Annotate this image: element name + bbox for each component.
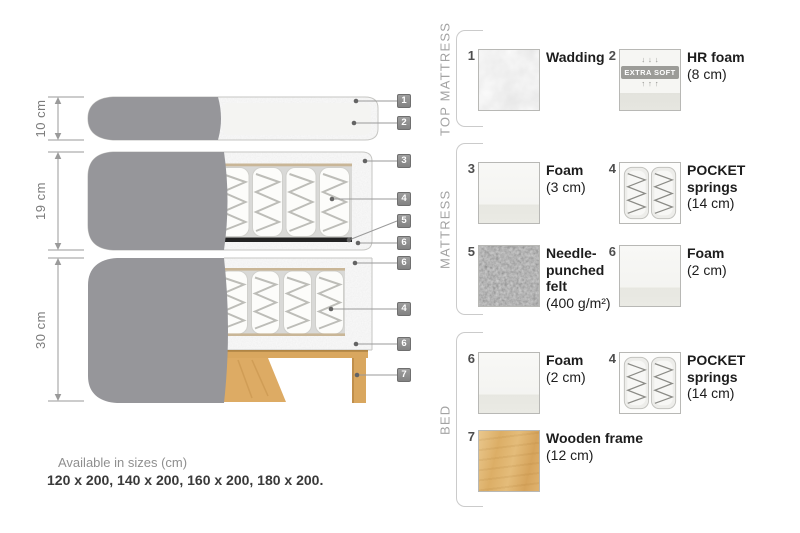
foam-swatch bbox=[619, 245, 681, 307]
callout-badge-4: 4 bbox=[397, 192, 411, 206]
foam-swatch bbox=[478, 162, 540, 224]
item-size: (14 cm) bbox=[687, 195, 745, 212]
dimension-label-30cm: 30 cm bbox=[33, 311, 48, 349]
felt-swatch bbox=[478, 245, 540, 307]
wood-swatch bbox=[478, 430, 540, 492]
extra-soft-badge: EXTRA SOFT bbox=[621, 66, 678, 79]
item-size: (2 cm) bbox=[546, 369, 586, 386]
legend-item-wadding: 1 Wadding bbox=[460, 49, 605, 111]
item-label: POCKET bbox=[687, 162, 745, 179]
top-mattress-section bbox=[80, 90, 386, 148]
item-number: 7 bbox=[460, 430, 475, 444]
item-label: springs bbox=[687, 369, 745, 386]
item-number: 4 bbox=[601, 162, 616, 176]
item-label: springs bbox=[687, 179, 745, 196]
pocket-springs-swatch bbox=[619, 352, 681, 414]
item-number: 3 bbox=[460, 162, 475, 176]
item-number: 4 bbox=[601, 352, 616, 366]
wadding-swatch bbox=[478, 49, 540, 111]
callout-badge-2: 2 bbox=[397, 116, 411, 130]
group-label-bed: BED bbox=[435, 332, 455, 507]
item-size: (3 cm) bbox=[546, 179, 586, 196]
legend-item-foam-2cm: 6 Foam (2 cm) bbox=[601, 245, 727, 307]
item-number: 1 bbox=[460, 49, 475, 63]
legend-item-foam-2cm-bed: 6 Foam (2 cm) bbox=[460, 352, 586, 414]
legend-item-hr-foam: 2 ↓↓↓ EXTRA SOFT ↑↑↑ HR foam (8 cm) bbox=[601, 49, 745, 111]
item-number: 6 bbox=[601, 245, 616, 259]
item-size: (14 cm) bbox=[687, 385, 745, 402]
materials-legend: TOP MATTRESS 1 Wadding 2 ↓↓↓ EXTRA SOFT … bbox=[435, 0, 800, 533]
dimension-19cm bbox=[48, 152, 84, 250]
item-size: (8 cm) bbox=[687, 66, 745, 83]
item-label: Foam bbox=[546, 352, 586, 369]
foam-swatch bbox=[478, 352, 540, 414]
item-number: 5 bbox=[460, 245, 475, 259]
item-size: (12 cm) bbox=[546, 447, 643, 464]
item-label: POCKET bbox=[687, 352, 745, 369]
legend-item-pocket-springs: 4 POCKET springs (14 cm) bbox=[601, 162, 745, 224]
group-label-top-mattress: TOP MATTRESS bbox=[435, 30, 455, 127]
callout-badge-6b: 6 bbox=[397, 256, 411, 270]
item-number: 2 bbox=[601, 49, 616, 63]
dimension-label-19cm: 19 cm bbox=[33, 182, 48, 220]
legend-item-foam-3cm: 3 Foam (3 cm) bbox=[460, 162, 586, 224]
sizes-availability-list: 120 x 200, 140 x 200, 160 x 200, 180 x 2… bbox=[47, 472, 323, 488]
callout-badge-6: 6 bbox=[397, 236, 411, 250]
callout-badge-1: 1 bbox=[397, 94, 411, 108]
item-label: Wadding bbox=[546, 49, 605, 66]
dimension-10cm bbox=[48, 97, 84, 140]
group-label-mattress: MATTRESS bbox=[435, 143, 455, 315]
callout-badge-7: 7 bbox=[397, 368, 411, 382]
wooden-frame bbox=[220, 350, 368, 403]
callout-badge-3: 3 bbox=[397, 154, 411, 168]
item-label: Foam bbox=[687, 245, 727, 262]
bed-cutaway-diagram: 10 cm 19 cm 30 cm bbox=[0, 0, 430, 533]
mattress-section bbox=[80, 145, 386, 257]
pocket-springs-swatch bbox=[619, 162, 681, 224]
item-label: Wooden frame bbox=[546, 430, 643, 447]
arrows-down-icon: ↓↓↓ bbox=[638, 56, 661, 64]
item-number: 6 bbox=[460, 352, 475, 366]
callout-badge-6c: 6 bbox=[397, 337, 411, 351]
legend-item-pocket-springs-bed: 4 POCKET springs (14 cm) bbox=[601, 352, 745, 414]
hr-foam-swatch: ↓↓↓ EXTRA SOFT ↑↑↑ bbox=[619, 49, 681, 111]
callout-badge-4b: 4 bbox=[397, 302, 411, 316]
dimension-30cm bbox=[48, 258, 84, 401]
callout-badge-5: 5 bbox=[397, 214, 411, 228]
legend-item-wooden-frame: 7 Wooden frame (12 cm) bbox=[460, 430, 643, 492]
arrows-up-icon: ↑↑↑ bbox=[638, 80, 661, 88]
mattress-construction-infographic: 10 cm 19 cm 30 cm bbox=[0, 0, 800, 533]
dimension-label-10cm: 10 cm bbox=[33, 100, 48, 138]
item-label: HR foam bbox=[687, 49, 745, 66]
item-label: Foam bbox=[546, 162, 586, 179]
legend-item-needle-punched-felt: 5 Needle- punched felt (400 g/m²) bbox=[460, 245, 611, 311]
bed-section bbox=[88, 253, 377, 403]
item-size: (2 cm) bbox=[687, 262, 727, 279]
sizes-availability-title: Available in sizes (cm) bbox=[58, 455, 187, 470]
